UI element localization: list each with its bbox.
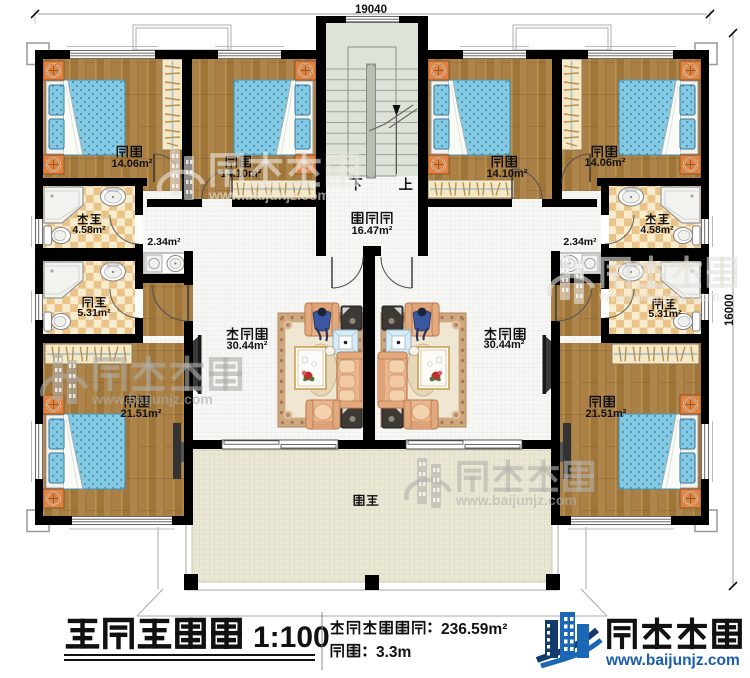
svg-text:www.baijunjz.com: www.baijunjz.com — [91, 391, 213, 407]
svg-text:14.10m²: 14.10m² — [487, 168, 528, 180]
svg-text:21.51m²: 21.51m² — [586, 408, 627, 420]
svg-text:2.34m²: 2.34m² — [563, 236, 597, 248]
svg-text:www.baijunjz.com: www.baijunjz.com — [208, 187, 330, 203]
svg-text:4.58m²: 4.58m² — [640, 224, 674, 236]
svg-text:21.51m²: 21.51m² — [121, 408, 162, 420]
svg-text:30.44m²: 30.44m² — [484, 339, 525, 351]
svg-text:5.31m²: 5.31m² — [648, 308, 682, 320]
svg-text:3.3m: 3.3m — [376, 644, 411, 661]
svg-text:14.06m²: 14.06m² — [112, 158, 153, 170]
svg-text:2.34m²: 2.34m² — [147, 236, 181, 248]
svg-text:14.06m²: 14.06m² — [585, 157, 626, 169]
svg-text:www.baijunjz.com: www.baijunjz.com — [605, 652, 740, 669]
svg-text:16000: 16000 — [724, 294, 736, 326]
svg-text:236.59m²: 236.59m² — [441, 621, 507, 638]
svg-text:1:100: 1:100 — [253, 621, 330, 654]
svg-text:19040: 19040 — [355, 4, 387, 16]
svg-text:16.47m²: 16.47m² — [352, 225, 393, 237]
svg-text:www.baijunjz.com: www.baijunjz.com — [455, 492, 577, 508]
svg-text:5.31m²: 5.31m² — [77, 307, 111, 319]
svg-text:www.baijunjz.com: www.baijunjz.com — [598, 288, 720, 304]
svg-text:30.44m²: 30.44m² — [227, 340, 268, 352]
svg-text:4.58m²: 4.58m² — [72, 224, 106, 236]
